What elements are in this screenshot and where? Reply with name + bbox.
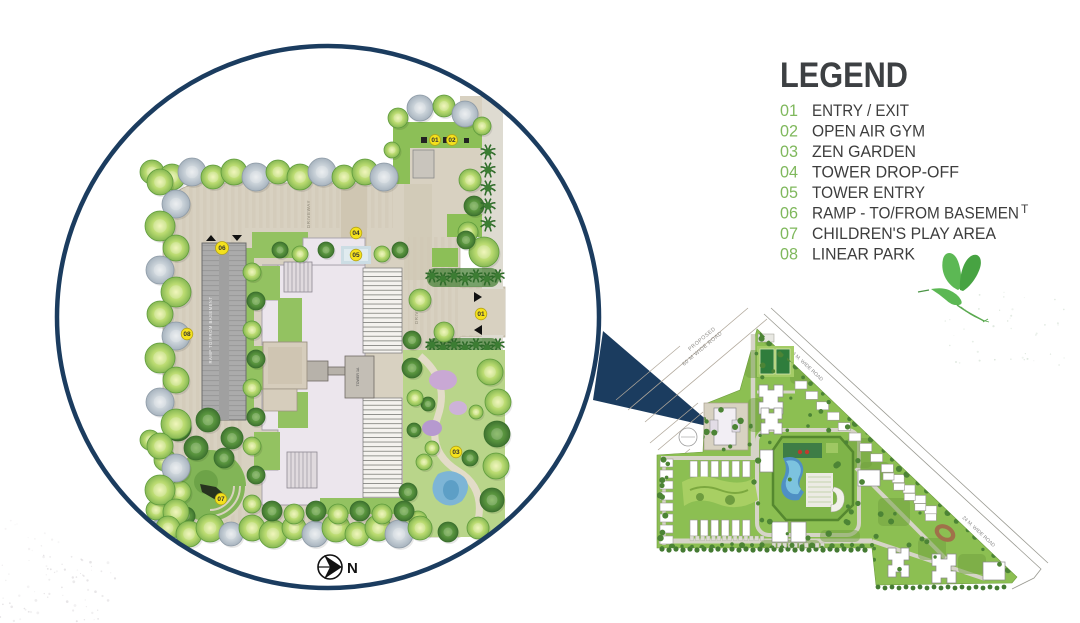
svg-text:RAMP TO/FROM BASEMENT: RAMP TO/FROM BASEMENT [208,296,213,363]
svg-text:05: 05 [352,252,360,259]
svg-text:CHILDREN'S PLAY AREA: CHILDREN'S PLAY AREA [812,225,996,243]
svg-text:07: 07 [217,496,225,503]
svg-text:06: 06 [780,205,798,223]
svg-text:LEGEND: LEGEND [780,56,908,95]
svg-text:RAMP - TO/FROM BASEMEN: RAMP - TO/FROM BASEMEN [812,205,1019,223]
svg-text:TOWER ENTRY: TOWER ENTRY [812,184,925,202]
svg-text:07: 07 [780,225,798,243]
svg-text:01: 01 [780,102,798,120]
svg-text:TOWER 1A: TOWER 1A [356,367,360,386]
svg-text:T: T [1021,202,1029,216]
svg-text:04: 04 [352,230,360,237]
svg-text:02: 02 [780,123,798,141]
svg-text:08: 08 [183,331,191,338]
svg-text:03: 03 [780,143,798,161]
svg-text:OPEN AIR GYM: OPEN AIR GYM [812,123,925,141]
svg-text:01: 01 [477,311,485,318]
svg-text:01: 01 [431,137,439,144]
svg-text:TOWER DROP-OFF: TOWER DROP-OFF [812,164,959,182]
svg-text:DRIVEWAY: DRIVEWAY [306,200,311,228]
svg-text:08: 08 [780,246,798,264]
svg-text:06: 06 [218,245,226,252]
svg-text:ZEN GARDEN: ZEN GARDEN [812,143,916,161]
svg-text:03: 03 [452,449,460,456]
svg-text:04: 04 [780,164,798,182]
svg-text:ENTRY / EXIT: ENTRY / EXIT [812,102,909,120]
svg-text:LINEAR PARK: LINEAR PARK [812,246,915,264]
svg-text:N: N [347,560,358,577]
svg-text:02: 02 [448,137,456,144]
svg-text:05: 05 [780,184,798,202]
